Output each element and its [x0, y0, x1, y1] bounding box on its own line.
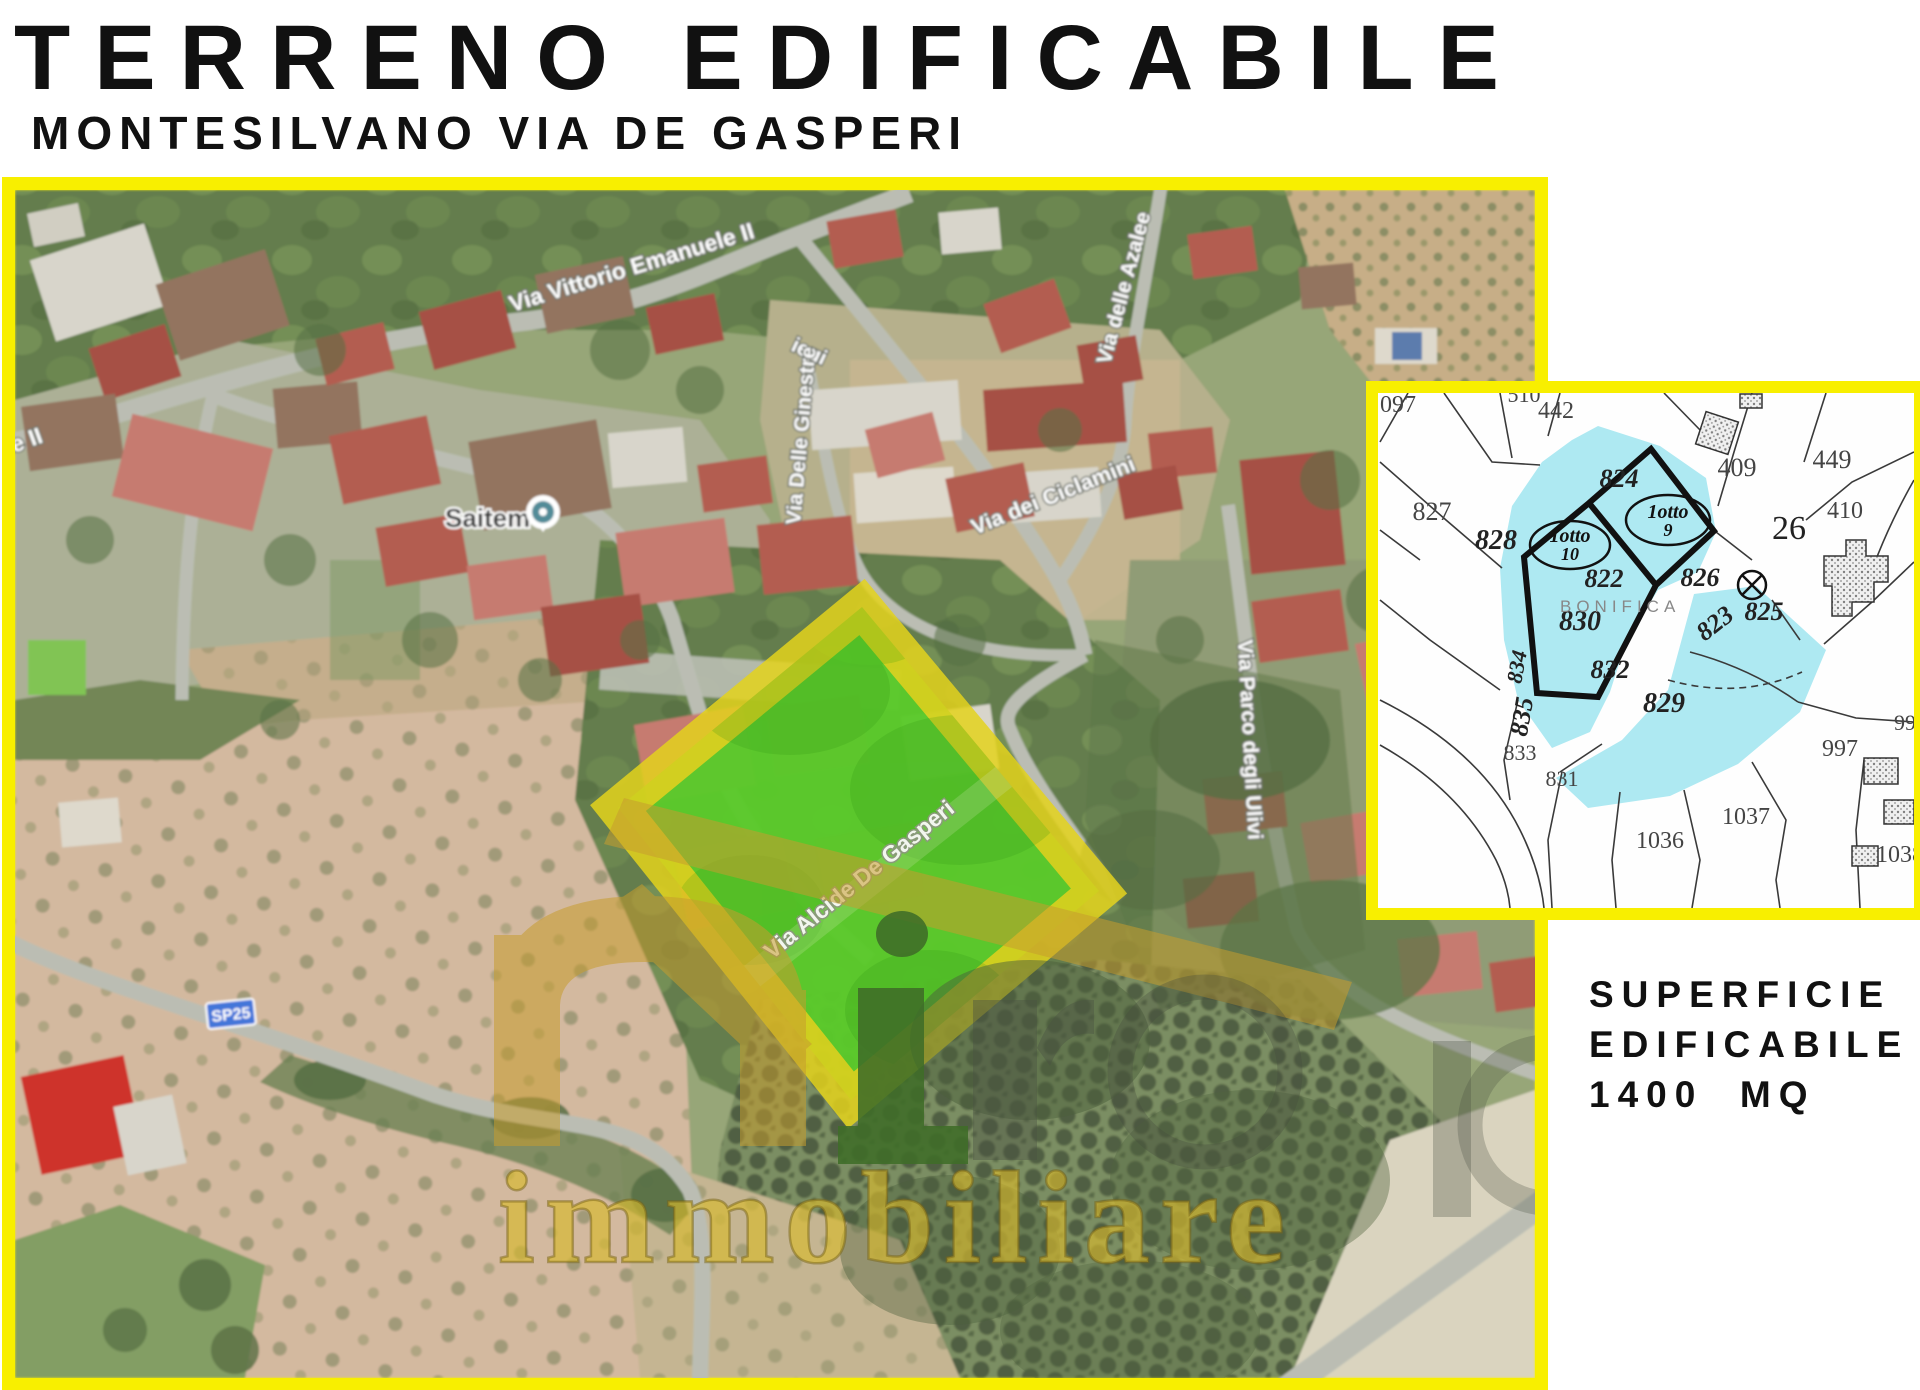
svg-text:997: 997: [1822, 736, 1858, 762]
svg-text:828: 828: [1475, 525, 1517, 556]
svg-text:097: 097: [1380, 392, 1416, 418]
svg-text:410: 410: [1827, 498, 1863, 524]
svg-text:immobiliare: immobiliare: [498, 1144, 1295, 1291]
svg-text:1037: 1037: [1722, 804, 1770, 830]
svg-text:449: 449: [1813, 445, 1852, 474]
svg-text:827: 827: [1413, 497, 1452, 526]
svg-text:833: 833: [1504, 740, 1537, 765]
svg-text:831: 831: [1546, 766, 1579, 791]
svg-text:1038: 1038: [1876, 842, 1920, 868]
svg-text:9: 9: [1664, 520, 1673, 540]
svg-text:825: 825: [1745, 597, 1784, 626]
svg-text:BONIFICA: BONIFICA: [1560, 597, 1680, 616]
svg-text:822: 822: [1585, 564, 1624, 593]
svg-text:10: 10: [1561, 544, 1579, 564]
svg-text:442: 442: [1538, 398, 1574, 424]
svg-text:26: 26: [1772, 510, 1806, 547]
svg-text:829: 829: [1643, 688, 1685, 719]
svg-text:824: 824: [1600, 464, 1639, 493]
svg-text:409: 409: [1718, 453, 1757, 482]
svg-text:99: 99: [1894, 710, 1916, 735]
svg-text:826: 826: [1681, 563, 1720, 592]
svg-text:1036: 1036: [1636, 828, 1684, 854]
svg-text:832: 832: [1591, 655, 1630, 684]
